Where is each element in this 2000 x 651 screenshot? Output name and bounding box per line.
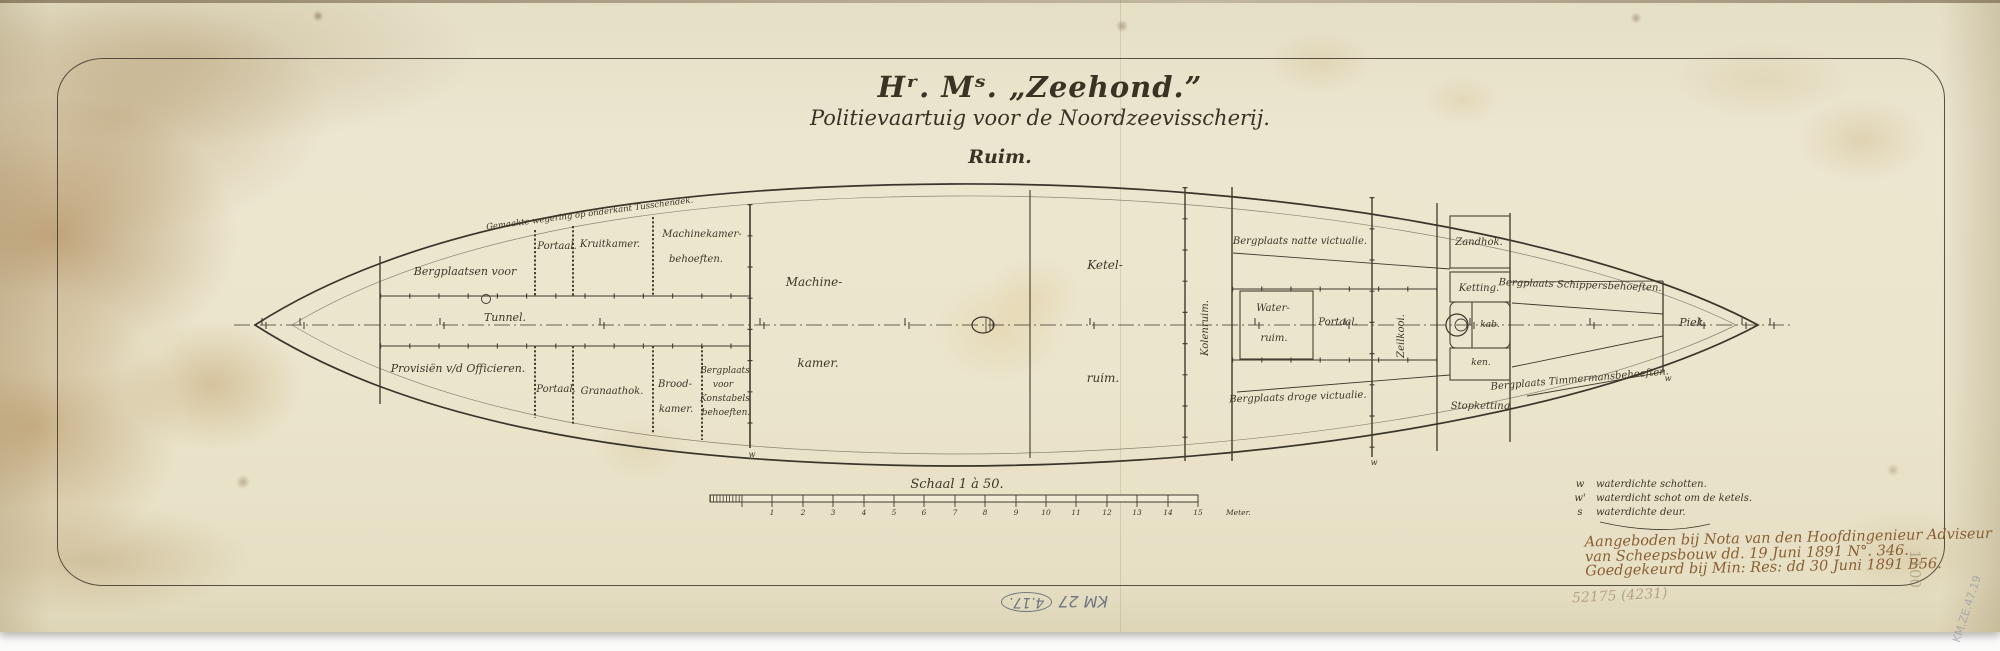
watertight-mark-3: w bbox=[1665, 374, 1672, 383]
legend-flourish bbox=[1600, 522, 1710, 530]
label-ken: ken. bbox=[1471, 358, 1491, 368]
label-kab: kab. bbox=[1480, 320, 1500, 330]
label-granaathok: Granaathok. bbox=[581, 386, 644, 397]
label-machinekamer-behoeften-2: behoeften. bbox=[669, 254, 723, 265]
label-stopketting: Stopketting. bbox=[1451, 401, 1514, 412]
label-machine-1: Machine- bbox=[785, 275, 843, 289]
scale-unit: Meter. bbox=[1225, 508, 1251, 517]
label-brood-1: Brood- bbox=[657, 379, 693, 390]
label-kruitkamer: Kruitkamer. bbox=[579, 239, 640, 250]
scale-tick: 8 bbox=[983, 508, 988, 517]
label-portaal-top: Portaal. bbox=[536, 241, 576, 252]
legend-symbol-1: w bbox=[1576, 479, 1585, 490]
scale-tick: 10 bbox=[1041, 508, 1051, 517]
label-portaal-mid: Portaal. bbox=[1317, 317, 1357, 328]
scale-tick: 2 bbox=[800, 508, 806, 517]
legend-symbol-3: s bbox=[1577, 507, 1582, 518]
label-konstabel-1: Bergplaats bbox=[699, 366, 750, 376]
label-konstabel-2: voor bbox=[713, 380, 734, 390]
legend-text-3: waterdichte deur. bbox=[1596, 507, 1686, 518]
label-provisien: Provisiën v/d Officieren. bbox=[390, 362, 526, 375]
watertight-mark-1: w bbox=[749, 450, 756, 459]
scale-tick: 11 bbox=[1071, 508, 1081, 517]
label-water-2: ruim. bbox=[1260, 333, 1287, 344]
scale-tick: 13 bbox=[1132, 508, 1142, 517]
scale-tick: 1 bbox=[770, 508, 775, 517]
label-tunnel: Tunnel. bbox=[484, 311, 526, 324]
label-piek: Piek. bbox=[1678, 316, 1707, 329]
label-machine-2: kamer. bbox=[797, 356, 838, 370]
scale-tick: 7 bbox=[953, 508, 958, 517]
scale-tick: 3 bbox=[831, 508, 836, 517]
label-bergplaatsen-voor: Bergplaatsen voor bbox=[413, 265, 517, 278]
scanned-ship-plan: Hʳ. Mˢ. „Zeehond.” Politievaartuig voor … bbox=[0, 0, 2000, 651]
wegering-note: Gemaakte wegering op onderkant Tusschend… bbox=[486, 195, 694, 232]
label-ketting: Ketting. bbox=[1458, 283, 1499, 294]
pencil-code-text: KM 27 bbox=[1058, 593, 1108, 612]
label-natte-victualie: Bergplaats natte victualie. bbox=[1232, 236, 1367, 247]
label-konstabel-4: behoeften. bbox=[702, 408, 751, 418]
label-schippersbehoeften: Bergplaats Schippersbehoeften. bbox=[1497, 277, 1661, 294]
scale-tick: 14 bbox=[1163, 508, 1173, 517]
label-kolenruim: Kolenruim. bbox=[1200, 300, 1211, 357]
fittings bbox=[482, 295, 1469, 337]
deck-lines bbox=[380, 253, 1663, 396]
legend-text-2: waterdicht schot om de ketels. bbox=[1596, 493, 1752, 504]
label-ketel-1: Ketel- bbox=[1086, 258, 1123, 272]
centerline bbox=[234, 318, 1790, 329]
pencil-archive-code: KM 27 4.17. bbox=[958, 586, 1108, 618]
label-brood-2: kamer. bbox=[659, 404, 693, 415]
label-portaal-bottom: Portaal. bbox=[535, 384, 575, 395]
scale-tick: 9 bbox=[1014, 508, 1019, 517]
label-droge-victualie: Bergplaats droge victualie. bbox=[1228, 390, 1367, 406]
label-timmermansbehoeften: Bergplaats Timmermansbehoeften. bbox=[1489, 366, 1669, 393]
pencil-circled-number: 4.17. bbox=[1001, 592, 1053, 612]
legend-symbol-2: w' bbox=[1574, 493, 1585, 504]
scale-tick: 12 bbox=[1102, 508, 1112, 517]
scale-tick: 6 bbox=[922, 508, 927, 517]
label-zeilkooi: Zeilkooi. bbox=[1396, 314, 1407, 359]
scale-tick: 15 bbox=[1193, 508, 1203, 517]
edge-number: 1100 bbox=[1906, 550, 1924, 588]
label-water-1: Water- bbox=[1256, 303, 1290, 314]
scale-tick-labels: 1 2 3 4 5 6 7 8 9 10 11 12 13 14 15 Mete… bbox=[770, 508, 1251, 517]
approval-notes: Aangeboden bij Nota van den Hoofdingenie… bbox=[1585, 529, 1916, 579]
label-ketel-2: ruim. bbox=[1087, 371, 1120, 385]
label-zandhok: Zandhok. bbox=[1454, 237, 1502, 248]
label-machinekamer-behoeften-1: Machinekamer- bbox=[661, 229, 742, 240]
scale-tick: 5 bbox=[892, 508, 897, 517]
scale-bar: Schaal 1 à 50. 1 2 3 4 5 6 7 8 9 10 11 1… bbox=[710, 477, 1251, 517]
watertight-mark-2: w bbox=[1371, 458, 1378, 467]
legend: w waterdichte schotten. w' waterdicht sc… bbox=[1574, 479, 1752, 530]
scale-caption: Schaal 1 à 50. bbox=[910, 477, 1003, 492]
label-konstabel-3: Konstabels bbox=[699, 394, 750, 404]
scale-tick: 4 bbox=[861, 508, 867, 517]
legend-text-1: waterdichte schotten. bbox=[1596, 479, 1707, 490]
compartment-labels: Gemaakte wegering op onderkant Tusschend… bbox=[390, 195, 1707, 467]
